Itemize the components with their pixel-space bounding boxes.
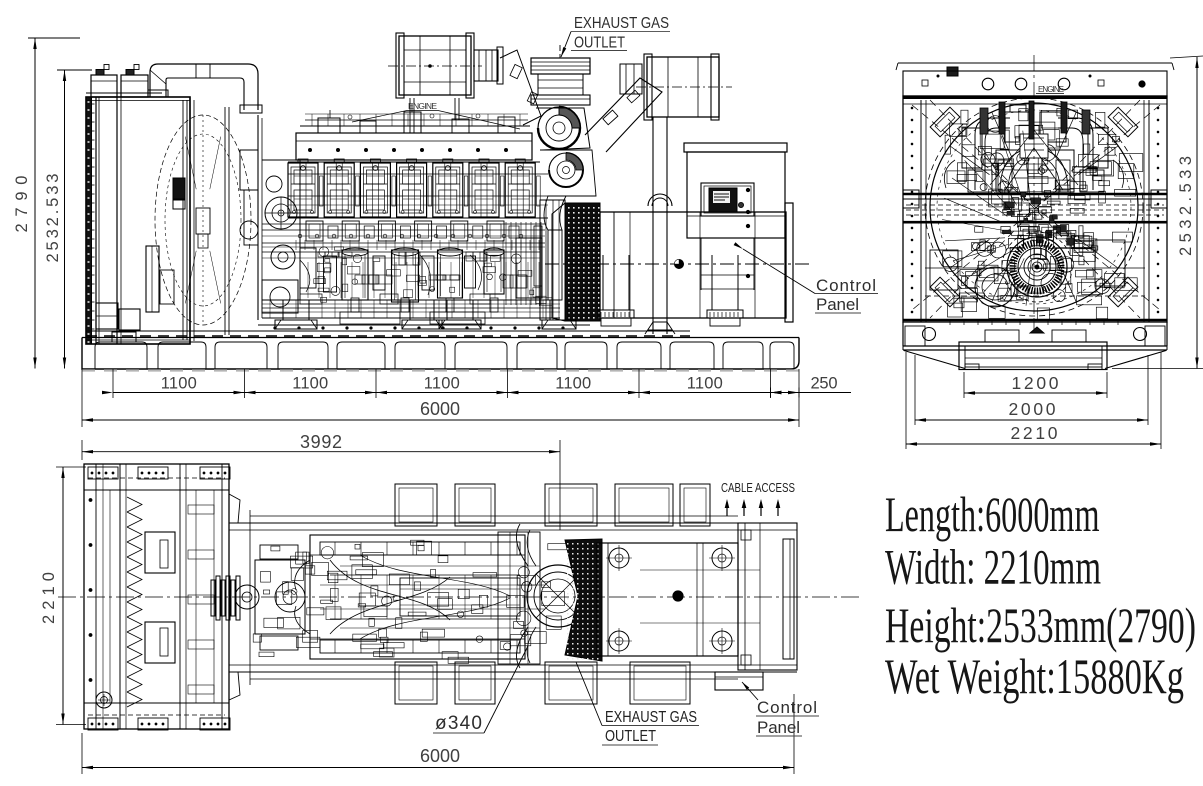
svg-text:3992: 3992 <box>300 432 342 452</box>
svg-text:1100: 1100 <box>424 375 460 393</box>
svg-text:6000: 6000 <box>420 399 460 419</box>
svg-text:2532.533: 2532.533 <box>1177 156 1195 256</box>
svg-text:OUTLET: OUTLET <box>574 35 625 52</box>
svg-text:1100: 1100 <box>687 375 723 393</box>
svg-text:1100: 1100 <box>161 375 197 393</box>
svg-text:Height:2533mm(2790): Height:2533mm(2790) <box>885 597 1196 653</box>
svg-text:Wet Weight:15880Kg: Wet Weight:15880Kg <box>885 648 1184 704</box>
svg-text:Control: Control <box>816 276 876 295</box>
svg-text:1100: 1100 <box>292 375 328 393</box>
svg-text:EXHAUST GAS: EXHAUST GAS <box>574 15 669 32</box>
svg-text:Control: Control <box>757 698 817 717</box>
svg-text:Length:6000mm: Length:6000mm <box>885 486 1100 542</box>
svg-text:Panel: Panel <box>757 718 800 737</box>
svg-text:EXHAUST GAS: EXHAUST GAS <box>605 709 697 726</box>
svg-text:Panel: Panel <box>816 295 859 314</box>
svg-text:Width: 2210mm: Width: 2210mm <box>885 539 1101 595</box>
svg-text:1100: 1100 <box>555 375 591 393</box>
svg-text:250: 250 <box>811 375 838 393</box>
svg-text:CABLE ACCESS: CABLE ACCESS <box>721 481 795 495</box>
svg-text:2532.533: 2532.533 <box>44 174 62 263</box>
svg-text:ENGINE: ENGINE <box>1038 85 1064 94</box>
svg-text:OUTLET: OUTLET <box>605 728 656 745</box>
svg-text:ENGINE: ENGINE <box>408 101 437 111</box>
svg-text:6000: 6000 <box>420 746 460 766</box>
